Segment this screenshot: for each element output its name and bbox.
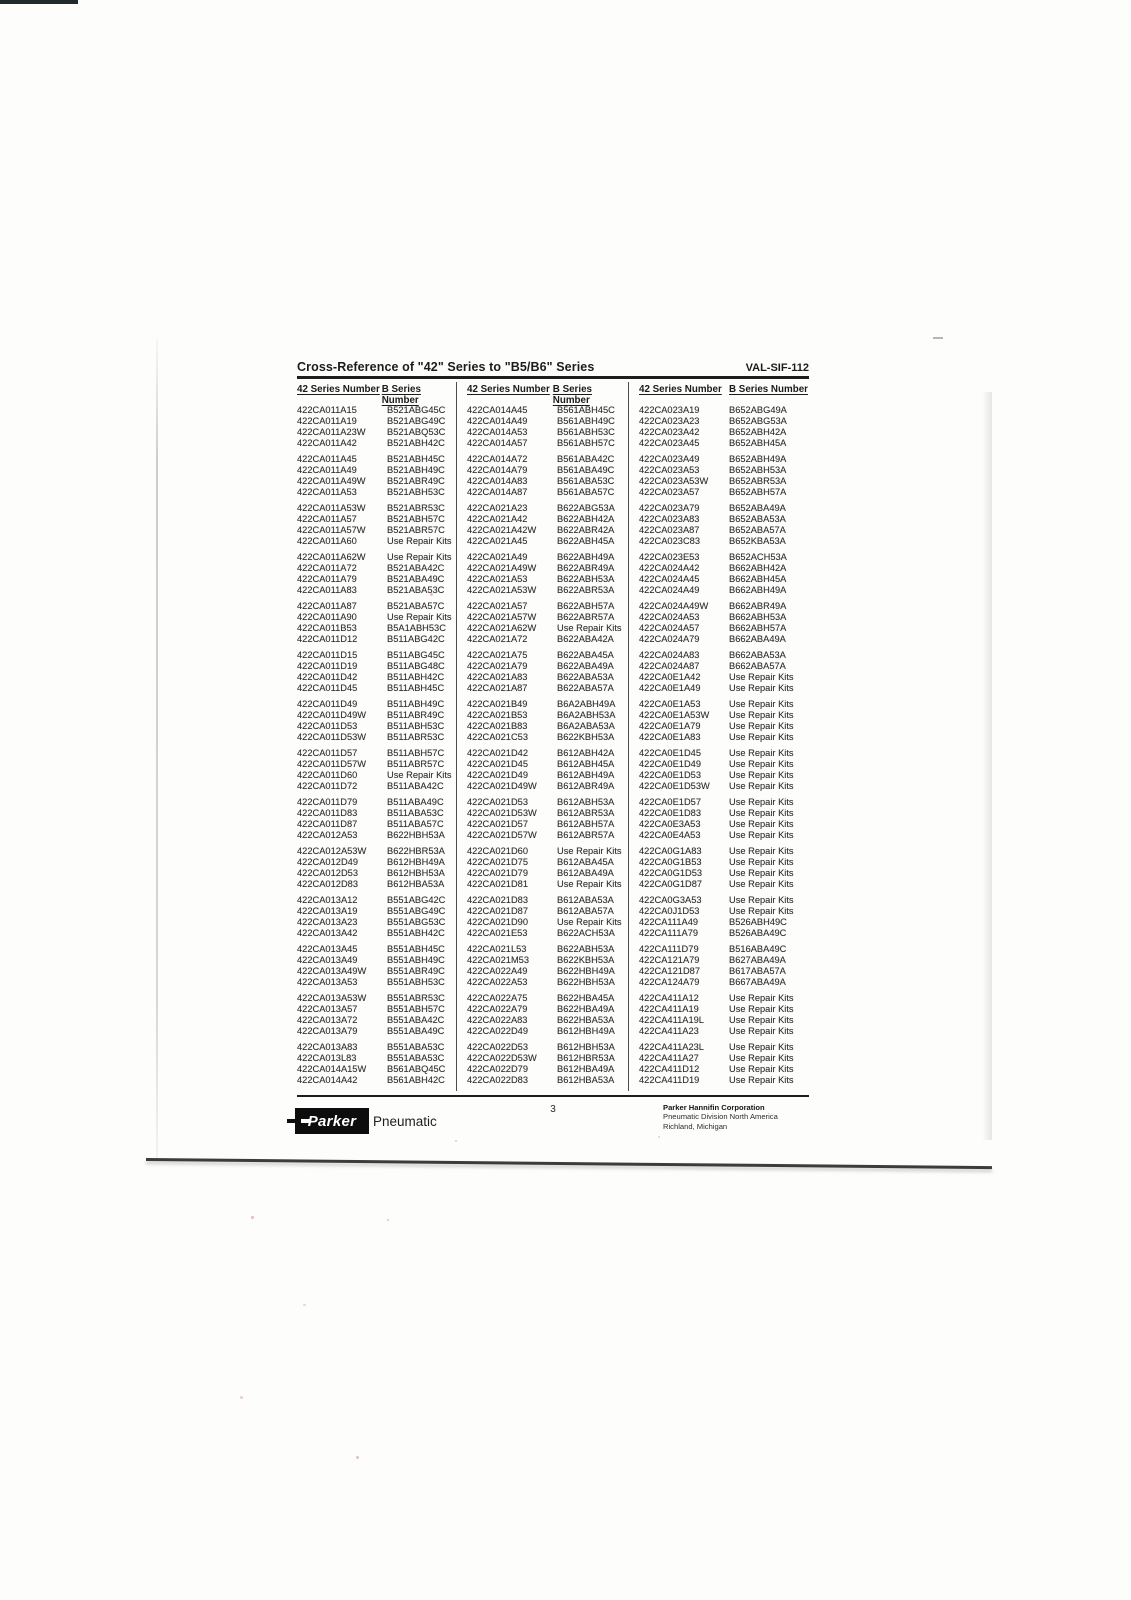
table-row: 422CA013A42B551ABH42C [297,928,456,939]
cell-42-series-number: 422CA024A49W [639,601,729,612]
cell-b-series-number: B561ABH42C [387,1075,445,1086]
cell-b-series-number: B622ABH57A [557,601,614,612]
cell-b-series-number: Use Repair Kits [729,1004,794,1015]
cell-b-series-number: Use Repair Kits [729,672,794,683]
table-row: 422CA022D53B612HBH53A [467,1042,628,1053]
cell-42-series-number: 422CA023A42 [639,427,729,438]
cell-42-series-number: 422CA021A75 [467,650,557,661]
cell-42-series-number: 422CA022D53W [467,1053,557,1064]
row-group: 422CA023A19B652ABG49A422CA023A23B652ABG5… [639,405,809,449]
table-row: 422CA021D49B612ABH49A [467,770,628,781]
cell-42-series-number: 422CA024A49 [639,585,729,596]
cell-42-series-number: 422CA013A72 [297,1015,387,1026]
cell-b-series-number: B5A1ABH53C [387,623,446,634]
cell-b-series-number: Use Repair Kits [729,781,794,792]
cell-b-series-number: B622HBH49A [557,966,615,977]
table-row: 422CA014A57B561ABH57C [467,438,628,449]
row-group: 422CA022D53B612HBH53A422CA022D53WB612HBR… [467,1042,628,1086]
cell-b-series-number: Use Repair Kits [557,846,622,857]
table-row: 422CA022A75B622HBA45A [467,993,628,1004]
table-row: 422CA013A83B551ABA53C [297,1042,456,1053]
table-row: 422CA011A49B521ABH49C [297,465,456,476]
cell-42-series-number: 422CA011A45 [297,454,387,465]
page-title: Cross-Reference of "42" Series to "B5/B6… [297,360,594,374]
cell-b-series-number: B622HBR53A [387,846,445,857]
table-row: 422CA013A19B551ABG49C [297,906,456,917]
cell-42-series-number: 422CA013A49 [297,955,387,966]
table-row: 422CA014A79B561ABA49C [467,465,628,476]
table-row: 422CA011D87B511ABA57C [297,819,456,830]
cell-42-series-number: 422CA023A53W [639,476,729,487]
cell-42-series-number: 422CA024A83 [639,650,729,661]
cell-b-series-number: B511ABG48C [387,661,445,672]
table-row: 422CA024A42B662ABH42A [639,563,809,574]
cell-42-series-number: 422CA011D60 [297,770,387,781]
cell-42-series-number: 422CA021D49W [467,781,557,792]
cell-b-series-number: Use Repair Kits [729,770,794,781]
cell-42-series-number: 422CA014A15W [297,1064,387,1075]
cell-b-series-number: B551ABG42C [387,895,445,906]
cell-42-series-number: 422CA021D79 [467,868,557,879]
table-row: 422CA121D87B617ABA57A [639,966,809,977]
cell-b-series-number: B521ABG45C [387,405,445,416]
table-row: 422CA011A57B521ABH57C [297,514,456,525]
cell-b-series-number: B551ABA53C [387,1042,444,1053]
cell-b-series-number: B612ABA45A [557,857,614,868]
table-row: 422CA012D53B612HBH53A [297,868,456,879]
cell-42-series-number: 422CA022A53 [467,977,557,988]
table-row: 422CA021D53B612ABH53A [467,797,628,808]
cell-42-series-number: 422CA0E1D53W [639,781,729,792]
table-row: 422CA411A19Use Repair Kits [639,1004,809,1015]
cell-42-series-number: 422CA0J1D53 [639,906,729,917]
column-header-row: 42 Series Number B Series Number [297,384,456,399]
table-row: 422CA022D53WB612HBR53A [467,1053,628,1064]
table-row: 422CA023A87B652ABA57A [639,525,809,536]
table-row: 422CA121A79B627ABA49A [639,955,809,966]
cell-b-series-number: Use Repair Kits [729,879,794,890]
cell-42-series-number: 422CA021M53 [467,955,557,966]
header-42-series: 42 Series Number [297,384,382,399]
cell-b-series-number: B662ABH49A [729,585,786,596]
cell-42-series-number: 422CA012D49 [297,857,387,868]
cell-b-series-number: B622ABG53A [557,503,615,514]
cell-b-series-number: B612HBH49A [557,1026,615,1037]
cell-b-series-number: Use Repair Kits [729,759,794,770]
table-row: 422CA023A57B652ABH57A [639,487,809,498]
table-row: 422CA021A49WB622ABR49A [467,563,628,574]
column-body: 422CA011A15B521ABG45C422CA011A19B521ABG4… [297,405,456,1086]
table-row: 422CA411D19Use Repair Kits [639,1075,809,1086]
table-row: 422CA011A19B521ABG49C [297,416,456,427]
cell-b-series-number: B551ABH49C [387,955,445,966]
cell-b-series-number: B561ABA49C [557,465,614,476]
table-row: 422CA0G1B53Use Repair Kits [639,857,809,868]
row-group: 422CA011A45B521ABH45C422CA011A49B521ABH4… [297,454,456,498]
cell-42-series-number: 422CA021D81 [467,879,557,890]
cell-b-series-number: B561ABA42C [557,454,614,465]
table-row: 422CA011A23WB521ABQ53C [297,427,456,438]
cell-42-series-number: 422CA023C83 [639,536,729,547]
cell-42-series-number: 422CA411A23L [639,1042,729,1053]
cell-42-series-number: 422CA014A53 [467,427,557,438]
cell-b-series-number: B561ABH57C [557,438,615,449]
cell-42-series-number: 422CA021A57W [467,612,557,623]
cell-42-series-number: 422CA023E53 [639,552,729,563]
cell-42-series-number: 422CA021A72 [467,634,557,645]
table-row: 422CA021B53B6A2ABH53A [467,710,628,721]
cell-b-series-number: Use Repair Kits [729,732,794,743]
cell-42-series-number: 422CA411D12 [639,1064,729,1075]
cell-42-series-number: 422CA411A27 [639,1053,729,1064]
cell-b-series-number: B521ABH42C [387,438,445,449]
column-header-row: 42 Series Number B Series Number [639,384,809,399]
cell-b-series-number: B622ABH42A [557,514,614,525]
table-row: 422CA021A45B622ABH45A [467,536,628,547]
cell-42-series-number: 422CA011A72 [297,563,387,574]
cell-b-series-number: B521ABH53C [387,487,445,498]
table-row: 422CA021A72B622ABA42A [467,634,628,645]
cell-42-series-number: 422CA021D83 [467,895,557,906]
cell-b-series-number: B662ABH45A [729,574,786,585]
cell-42-series-number: 422CA021A62W [467,623,557,634]
cell-42-series-number: 422CA014A87 [467,487,557,498]
table-row: 422CA021A53WB622ABR53A [467,585,628,596]
cell-42-series-number: 422CA023A79 [639,503,729,514]
cell-42-series-number: 422CA014A57 [467,438,557,449]
cell-b-series-number: Use Repair Kits [729,1015,794,1026]
table-row: 422CA021A83B622ABA53A [467,672,628,683]
cell-42-series-number: 422CA022A79 [467,1004,557,1015]
scan-speck [240,1396,243,1399]
cell-b-series-number: B612HBH53A [387,868,445,879]
table-row: 422CA021A57B622ABH57A [467,601,628,612]
cell-b-series-number: B6A2ABH49A [557,699,615,710]
table-row: 422CA011A42B521ABH42C [297,438,456,449]
table-row: 422CA021A62WUse Repair Kits [467,623,628,634]
cell-42-series-number: 422CA013A42 [297,928,387,939]
cell-b-series-number: Use Repair Kits [729,1053,794,1064]
table-row: 422CA011D72B511ABA42C [297,781,456,792]
table-row: 422CA021M53B622KBH53A [467,955,628,966]
cell-42-series-number: 422CA021D60 [467,846,557,857]
cell-b-series-number: B612HBH49A [387,857,445,868]
cell-42-series-number: 422CA011D49 [297,699,387,710]
cell-42-series-number: 422CA012A53W [297,846,387,857]
cell-b-series-number: B612HBA53A [557,1075,614,1086]
table-row: 422CA011A57WB521ABR57C [297,525,456,536]
cell-42-series-number: 422CA011A90 [297,612,387,623]
table-row: 422CA021D45B612ABH45A [467,759,628,770]
parker-logo-text: Parker [308,1113,357,1130]
cell-b-series-number: Use Repair Kits [729,683,794,694]
table-row: 422CA011D57B511ABH57C [297,748,456,759]
cell-42-series-number: 422CA0E1D83 [639,808,729,819]
table-row: 422CA411A23Use Repair Kits [639,1026,809,1037]
row-group: 422CA0G1A83Use Repair Kits422CA0G1B53Use… [639,846,809,890]
cell-42-series-number: 422CA011B53 [297,623,387,634]
scan-dash-artifact [933,337,943,339]
cell-b-series-number: B511ABG42C [387,634,445,645]
row-group: 422CA011D49B511ABH49C422CA011D49WB511ABR… [297,699,456,743]
cell-b-series-number: B622HBA49A [557,1004,614,1015]
table-row: 422CA0E1D49Use Repair Kits [639,759,809,770]
cell-42-series-number: 422CA021C53 [467,732,557,743]
cell-b-series-number: B612ABA57A [557,906,614,917]
table-row: 422CA023A45B652ABH45A [639,438,809,449]
cell-b-series-number: Use Repair Kits [729,748,794,759]
cell-b-series-number: B652ABH53A [729,465,786,476]
table-row: 422CA011A15B521ABG45C [297,405,456,416]
brand-suffix: Pneumatic [373,1114,437,1129]
cell-42-series-number: 422CA121A79 [639,955,729,966]
cell-b-series-number: B662ABR49A [729,601,786,612]
table-row: 422CA0G1A83Use Repair Kits [639,846,809,857]
cell-42-series-number: 422CA014A45 [467,405,557,416]
table-row: 422CA021D75B612ABA45A [467,857,628,868]
table-row: 422CA0E1D45Use Repair Kits [639,748,809,759]
cell-42-series-number: 422CA021D53 [467,797,557,808]
cell-b-series-number: B521ABA57C [387,601,444,612]
row-group: 422CA021D42B612ABH42A422CA021D45B612ABH4… [467,748,628,792]
cell-42-series-number: 422CA0E1D57 [639,797,729,808]
table-row: 422CA011D49B511ABH49C [297,699,456,710]
cell-42-series-number: 422CA011A83 [297,585,387,596]
table-row: 422CA012A53B622HBH53A [297,830,456,841]
cell-b-series-number: B612ABR49A [557,781,614,792]
cell-42-series-number: 422CA013A57 [297,1004,387,1015]
table-row: 422CA014A83B561ABA53C [467,476,628,487]
row-group: 422CA011D57B511ABH57C422CA011D57WB511ABR… [297,748,456,792]
cell-42-series-number: 422CA011D12 [297,634,387,645]
cell-b-series-number: B551ABA53C [387,1053,444,1064]
cell-42-series-number: 422CA011A15 [297,405,387,416]
cell-42-series-number: 422CA014A72 [467,454,557,465]
cell-42-series-number: 422CA021A23 [467,503,557,514]
cell-42-series-number: 422CA014A49 [467,416,557,427]
cell-b-series-number: Use Repair Kits [729,721,794,732]
table-row: 422CA021E53B622ACH53A [467,928,628,939]
cell-42-series-number: 422CA011D53 [297,721,387,732]
cell-42-series-number: 422CA021A79 [467,661,557,672]
table-row: 422CA021A23B622ABG53A [467,503,628,514]
cell-b-series-number: Use Repair Kits [729,797,794,808]
cell-b-series-number: B622ABR57A [557,612,614,623]
cell-42-series-number: 422CA0E1D49 [639,759,729,770]
cell-42-series-number: 422CA0E1A53W [639,710,729,721]
cell-b-series-number: Use Repair Kits [729,1075,794,1086]
cell-b-series-number: Use Repair Kits [387,536,452,547]
cell-b-series-number: B617ABA57A [729,966,786,977]
row-group: 422CA021D60Use Repair Kits422CA021D75B61… [467,846,628,890]
cell-42-series-number: 422CA014A42 [297,1075,387,1086]
row-group: 422CA021D83B612ABA53A422CA021D87B612ABA5… [467,895,628,939]
row-group: 422CA021D53B612ABH53A422CA021D53WB612ABR… [467,797,628,841]
cell-42-series-number: 422CA012A53 [297,830,387,841]
row-group: 422CA0E1A53Use Repair Kits422CA0E1A53WUs… [639,699,809,743]
cell-b-series-number: B662ABH53A [729,612,786,623]
cell-b-series-number: B521ABR49C [387,476,445,487]
cell-42-series-number: 422CA011D45 [297,683,387,694]
row-group: 422CA0E1D57Use Repair Kits422CA0E1D83Use… [639,797,809,841]
cell-b-series-number: B521ABA49C [387,574,444,585]
cell-42-series-number: 422CA011A57 [297,514,387,525]
row-group: 422CA011D79B511ABA49C422CA011D83B511ABA5… [297,797,456,841]
cell-b-series-number: B526ABA49C [729,928,786,939]
table-row: 422CA011D79B511ABA49C [297,797,456,808]
cell-b-series-number: B511ABA53C [387,808,444,819]
page-spine-shadow [156,338,158,1162]
row-group: 422CA021L53B622ABH53A422CA021M53B622KBH5… [467,944,628,988]
table-row: 422CA021D60Use Repair Kits [467,846,628,857]
cell-42-series-number: 422CA011D57 [297,748,387,759]
row-group: 422CA013A45B551ABH45C422CA013A49B551ABH4… [297,944,456,988]
cell-b-series-number: B662ABH42A [729,563,786,574]
cell-b-series-number: B561ABH45C [557,405,615,416]
table-row: 422CA411D12Use Repair Kits [639,1064,809,1075]
cell-42-series-number: 422CA111A79 [639,928,729,939]
cell-42-series-number: 422CA023A57 [639,487,729,498]
cell-b-series-number: B652ABA49A [729,503,786,514]
table-row: 422CA023A79B652ABA49A [639,503,809,514]
cell-b-series-number: B526ABH49C [729,917,787,928]
table-row: 422CA014A42B561ABH42C [297,1075,456,1086]
table-row: 422CA014A53B561ABH53C [467,427,628,438]
table-row: 422CA011B53B5A1ABH53C [297,623,456,634]
cell-42-series-number: 422CA011A42 [297,438,387,449]
cell-42-series-number: 422CA022D79 [467,1064,557,1075]
cell-b-series-number: B622HBA53A [557,1015,614,1026]
table-row: 422CA011A49WB521ABR49C [297,476,456,487]
cell-42-series-number: 422CA011D42 [297,672,387,683]
cell-b-series-number: B622ABH53A [557,944,614,955]
cell-42-series-number: 422CA024A53 [639,612,729,623]
cell-b-series-number: B612ABH57A [557,819,614,830]
cell-42-series-number: 422CA0E1D45 [639,748,729,759]
cell-42-series-number: 422CA022A49 [467,966,557,977]
cell-b-series-number: B551ABG49C [387,906,445,917]
cell-42-series-number: 422CA111A49 [639,917,729,928]
cell-42-series-number: 422CA021A83 [467,672,557,683]
header-b-series: B Series Number [553,384,628,399]
cell-42-series-number: 422CA013A53 [297,977,387,988]
table-row: 422CA021A42WB622ABR42A [467,525,628,536]
table-row: 422CA0E1A42Use Repair Kits [639,672,809,683]
table-row: 422CA011A60Use Repair Kits [297,536,456,547]
brand-row: Parker Pneumatic [295,1108,437,1134]
cell-42-series-number: 422CA011A53 [297,487,387,498]
table-row: 422CA021A49B622ABH49A [467,552,628,563]
row-group: 422CA024A83B662ABA53A422CA024A87B662ABA5… [639,650,809,694]
table-row: 422CA013A53B551ABH53C [297,977,456,988]
cell-42-series-number: 422CA011A49W [297,476,387,487]
cell-b-series-number: B652ABG53A [729,416,787,427]
row-group: 422CA411A12Use Repair Kits422CA411A19Use… [639,993,809,1037]
table-row: 422CA024A83B662ABA53A [639,650,809,661]
scan-speck [658,1136,660,1138]
cell-b-series-number: B521ABA42C [387,563,444,574]
table-row: 422CA011A53B521ABH53C [297,487,456,498]
table-row: 422CA024A45B662ABH45A [639,574,809,585]
cell-42-series-number: 422CA023A53 [639,465,729,476]
table-row: 422CA0E3A53Use Repair Kits [639,819,809,830]
row-group: 422CA021A23B622ABG53A422CA021A42B622ABH4… [467,503,628,547]
row-group: 422CA014A72B561ABA42C422CA014A79B561ABA4… [467,454,628,498]
cell-b-series-number: B551ABA42C [387,1015,444,1026]
table-row: 422CA023A53WB652ABR53A [639,476,809,487]
cell-b-series-number: B612ABR53A [557,808,614,819]
cross-reference-table: 42 Series Number B Series Number 422CA01… [297,382,809,1091]
table-row: 422CA022D83B612HBA53A [467,1075,628,1086]
cell-42-series-number: 422CA024A79 [639,634,729,645]
cell-b-series-number: B652ABR53A [729,476,786,487]
row-group: 422CA013A83B551ABA53C422CA013L83B551ABA5… [297,1042,456,1086]
cell-b-series-number: B6A2ABH53A [557,710,615,721]
table-row: 422CA0E1A79Use Repair Kits [639,721,809,732]
cell-42-series-number: 422CA011D79 [297,797,387,808]
cell-b-series-number: B652ABA53A [729,514,786,525]
row-group: 422CA011A62WUse Repair Kits422CA011A72B5… [297,552,456,596]
cell-42-series-number: 422CA023A19 [639,405,729,416]
cell-42-series-number: 422CA023A83 [639,514,729,525]
cell-b-series-number: B652ACH53A [729,552,787,563]
cell-42-series-number: 422CA013A45 [297,944,387,955]
cell-b-series-number: Use Repair Kits [387,612,452,623]
row-group: 422CA024A49WB662ABR49A422CA024A53B662ABH… [639,601,809,645]
cell-b-series-number: B652ABH57A [729,487,786,498]
table-row: 422CA011D53WB511ABR53C [297,732,456,743]
cell-b-series-number: B511ABR53C [387,732,444,743]
cell-b-series-number: B662ABA57A [729,661,786,672]
cell-42-series-number: 422CA021A57 [467,601,557,612]
row-group: 422CA021B49B6A2ABH49A422CA021B53B6A2ABH5… [467,699,628,743]
table-row: 422CA014A49B561ABH49C [467,416,628,427]
table-row: 422CA014A72B561ABA42C [467,454,628,465]
scan-speck [455,1140,457,1142]
table-row: 422CA011D12B511ABG42C [297,634,456,645]
cell-b-series-number: B511ABH42C [387,672,444,683]
table-row: 422CA024A79B662ABA49A [639,634,809,645]
cell-b-series-number: B622ABH53A [557,574,614,585]
cell-42-series-number: 422CA021D57 [467,819,557,830]
cell-42-series-number: 422CA0E3A53 [639,819,729,830]
cell-42-series-number: 422CA021D45 [467,759,557,770]
table-row: 422CA021B83B6A2ABA53A [467,721,628,732]
cell-b-series-number: B561ABH49C [557,416,615,427]
cell-42-series-number: 422CA013A19 [297,906,387,917]
cell-42-series-number: 422CA021D75 [467,857,557,868]
row-group: 422CA013A53WB551ABR53C422CA013A57B551ABH… [297,993,456,1037]
cell-42-series-number: 422CA021D49 [467,770,557,781]
parker-logo-icon: Parker [295,1108,369,1134]
cell-42-series-number: 422CA024A42 [639,563,729,574]
row-group: 422CA012A53WB622HBR53A422CA012D49B612HBH… [297,846,456,890]
cell-b-series-number: Use Repair Kits [729,808,794,819]
column-body: 422CA014A45B561ABH45C422CA014A49B561ABH4… [467,405,628,1086]
doc-code: VAL-SIF-112 [746,362,809,374]
cell-b-series-number: B622ABH45A [557,536,614,547]
table-row: 422CA024A53B662ABH53A [639,612,809,623]
table-row: 422CA011A79B521ABA49C [297,574,456,585]
cell-42-series-number: 422CA0E1A42 [639,672,729,683]
scan-corner-artifact [0,0,78,4]
cell-b-series-number: B551ABA49C [387,1026,444,1037]
cell-42-series-number: 422CA011A79 [297,574,387,585]
cell-b-series-number: B612HBH53A [557,1042,615,1053]
table-row: 422CA011D19B511ABG48C [297,661,456,672]
table-row: 422CA0G1D87Use Repair Kits [639,879,809,890]
cell-b-series-number: B521ABR53C [387,503,445,514]
